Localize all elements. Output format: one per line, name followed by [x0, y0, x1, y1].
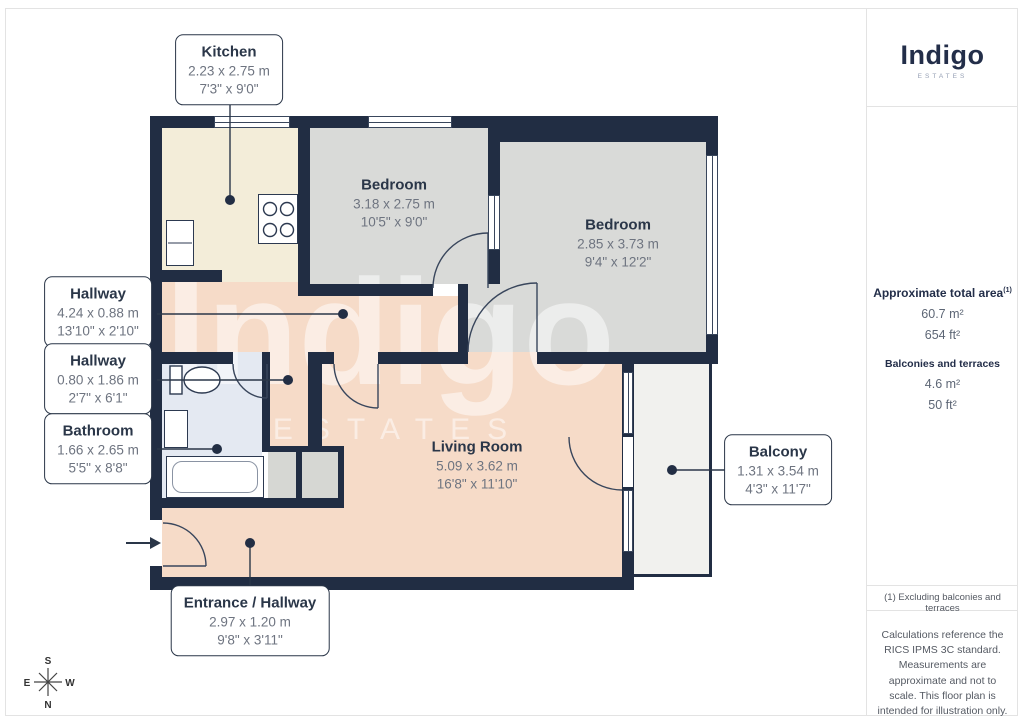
- wall-balcony-bottom: [634, 574, 712, 577]
- closet-a-floor: [268, 452, 296, 498]
- hallway1-label: Hallway 4.24 x 0.88 m 13'10" x 2'10": [44, 276, 152, 347]
- bedroom1-window: [368, 116, 452, 128]
- kitchen-window: [214, 116, 290, 128]
- hallway1-floor: [162, 282, 310, 352]
- bedroom2-window: [706, 155, 718, 335]
- hallway1-name: Hallway: [57, 284, 139, 304]
- wall-bedroom1-bottom: [298, 284, 433, 296]
- balcony-label: Balcony 1.31 x 3.54 m 4'3" x 11'7": [724, 434, 832, 505]
- logo-subtext: ESTATES: [867, 73, 1018, 80]
- bedroom2-name: Bedroom: [577, 215, 659, 235]
- hallway2-label: Hallway 0.80 x 1.86 m 2'7" x 6'1": [44, 343, 152, 414]
- balconies-title: Balconies and terraces: [867, 358, 1018, 370]
- entrance-door-gap: [150, 520, 162, 566]
- total-area-title: Approximate total area(1): [867, 286, 1018, 300]
- wall-kitchen-bottom: [150, 270, 222, 282]
- bedroom2-metric: 2.85 x 3.73 m: [577, 235, 659, 253]
- bedroom1-name: Bedroom: [353, 175, 435, 195]
- bathroom-sink: [164, 410, 188, 448]
- hallway2-metric: 0.80 x 1.86 m: [57, 371, 139, 389]
- living-room-name: Living Room: [432, 437, 523, 457]
- kitchen-imperial: 7'3" x 9'0": [188, 80, 270, 98]
- stove: [258, 194, 298, 244]
- wall-top-bedroom2: [500, 116, 718, 142]
- bedroom1-imperial: 10'5" x 9'0": [353, 213, 435, 231]
- total-area-ft2: 654 ft²: [867, 328, 1018, 342]
- sidebar-logo: Indigo ESTATES: [867, 40, 1018, 80]
- bathroom-label: Bathroom 1.66 x 2.65 m 5'5" x 8'8": [44, 413, 152, 484]
- closet-b-floor: [302, 452, 338, 498]
- hallway2-floor: [270, 352, 308, 452]
- wall-kitchen-bedroom1: [298, 116, 310, 296]
- bathtub-inner: [172, 461, 258, 493]
- bathroom-metric: 1.66 x 2.65 m: [57, 441, 139, 459]
- disclaimer-text: Calculations reference the RICS IPMS 3C …: [867, 628, 1018, 719]
- entrance-imperial: 9'8" x 3'11": [184, 631, 317, 649]
- hallway1-metric: 4.24 x 0.88 m: [57, 304, 139, 322]
- kitchen-label: Kitchen 2.23 x 2.75 m 7'3" x 9'0": [175, 34, 283, 105]
- bedroom1-metric: 3.18 x 2.75 m: [353, 195, 435, 213]
- hallway2-name: Hallway: [57, 351, 139, 371]
- living-room-metric: 5.09 x 3.62 m: [432, 457, 523, 475]
- balconies-m2: 4.6 m²: [867, 377, 1018, 391]
- bedroom1-label: Bedroom 3.18 x 2.75 m 10'5" x 9'0": [353, 175, 435, 230]
- bedroom2-label: Bedroom 2.85 x 3.73 m 9'4" x 12'2": [577, 215, 659, 270]
- kitchen-metric: 2.23 x 2.75 m: [188, 62, 270, 80]
- total-area-footnote-mark: (1): [1003, 287, 1012, 294]
- sidebar-footnote: (1) Excluding balconies and terraces: [867, 592, 1018, 614]
- kitchen-name: Kitchen: [188, 42, 270, 62]
- wall-hall-bottom-4: [378, 352, 468, 364]
- balcony-imperial: 4'3" x 11'7": [737, 480, 819, 498]
- kitchen-counter: [166, 220, 194, 266]
- entrance-label: Entrance / Hallway 2.97 x 1.20 m 9'8" x …: [171, 585, 330, 656]
- balcony-window-upper: [623, 372, 633, 434]
- wall-bathroom-bottom: [150, 498, 344, 508]
- bathroom-imperial: 5'5" x 8'8": [57, 459, 139, 477]
- wall-hall-bottom-1: [150, 352, 233, 364]
- wall-balcony-right: [709, 364, 712, 577]
- living-room-imperial: 16'8" x 11'10": [432, 475, 523, 493]
- entrance-metric: 2.97 x 1.20 m: [184, 613, 317, 631]
- bedroom2-alcove-floor: [468, 284, 500, 352]
- sidebar-line-1: [866, 106, 1018, 107]
- bedroom2-imperial: 9'4" x 12'2": [577, 253, 659, 271]
- logo-text: Indigo: [867, 40, 1018, 71]
- sidebar-line-2: [866, 585, 1018, 586]
- bathroom-name: Bathroom: [57, 421, 139, 441]
- wall-hallway-end: [458, 284, 468, 352]
- balcony-name: Balcony: [737, 442, 819, 462]
- balcony-door-gap: [623, 437, 633, 487]
- floorplan-page: Indigo ESTATES: [0, 0, 1024, 724]
- balconies-ft2: 50 ft²: [867, 398, 1018, 412]
- wall-closet-mid: [296, 452, 302, 498]
- sidebar-disclaimer-block: Calculations reference the RICS IPMS 3C …: [867, 628, 1018, 724]
- total-area-m2: 60.7 m²: [867, 307, 1018, 321]
- balcony-floor: [634, 364, 712, 574]
- hallway2-imperial: 2'7" x 6'1": [57, 389, 139, 407]
- hallway1-imperial: 13'10" x 2'10": [57, 322, 139, 340]
- wall-bathroom-right: [262, 352, 270, 452]
- sidebar-area-info: Approximate total area(1) 60.7 m² 654 ft…: [867, 286, 1018, 412]
- entrance-floor: [162, 508, 330, 577]
- wall-closet-top: [262, 446, 344, 452]
- balcony-metric: 1.31 x 3.54 m: [737, 462, 819, 480]
- hallway1-floor-b: [310, 296, 458, 352]
- entrance-name: Entrance / Hallway: [184, 593, 317, 613]
- bedroom-divider-door: [488, 195, 500, 250]
- living-room-label: Living Room 5.09 x 3.62 m 16'8" x 11'10": [432, 437, 523, 492]
- balcony-window-lower: [623, 490, 633, 552]
- wall-hallway2-living: [308, 352, 322, 452]
